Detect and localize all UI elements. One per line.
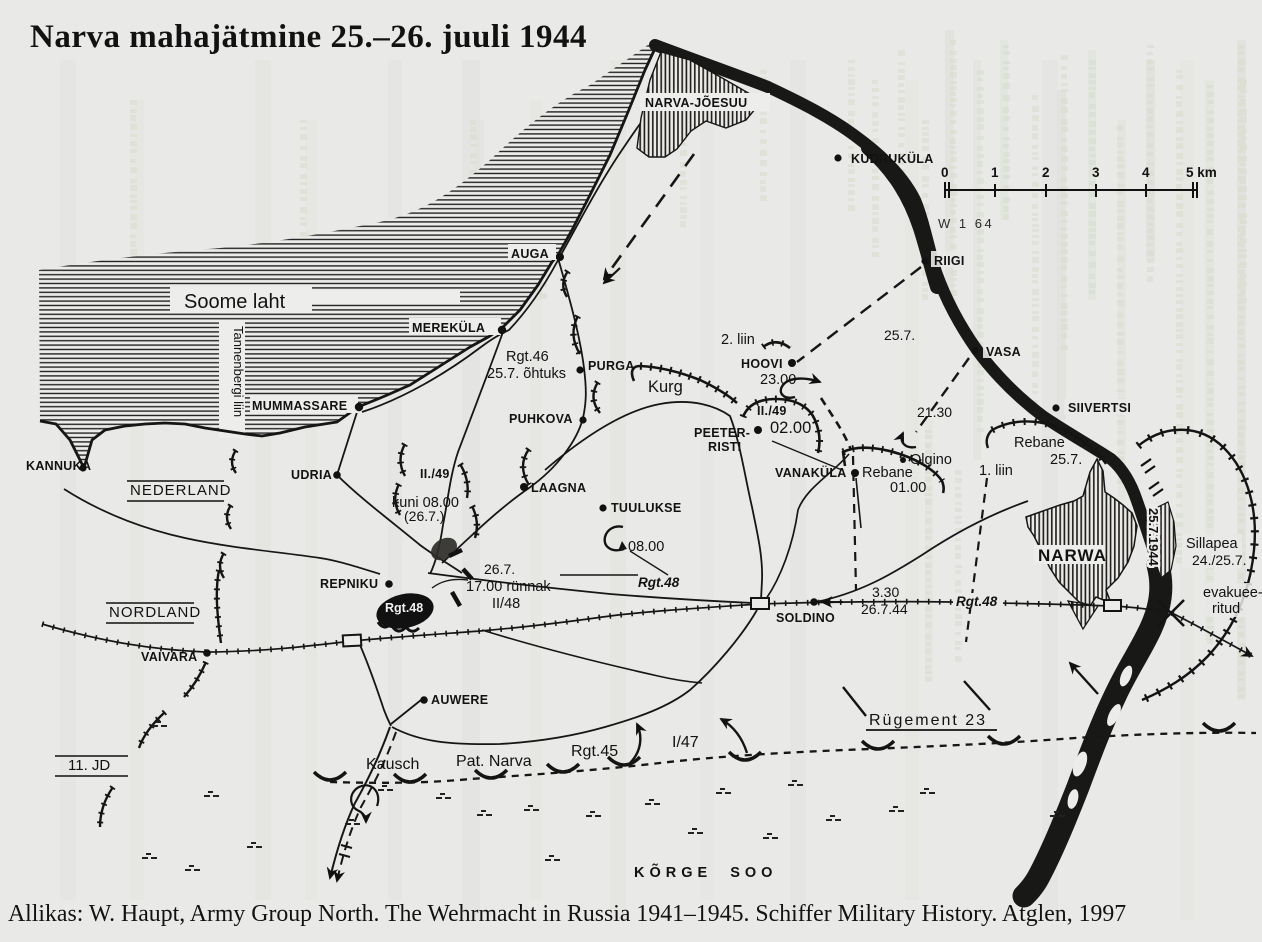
svg-text:PUHKOVA: PUHKOVA: [509, 412, 573, 426]
svg-text:KÕRGE SOO: KÕRGE SOO: [634, 863, 777, 881]
svg-text:2. liin: 2. liin: [721, 332, 755, 348]
svg-text:24./25.7.: 24./25.7.: [1192, 552, 1247, 568]
svg-text:2: 2: [1042, 165, 1050, 180]
svg-text:01.00: 01.00: [890, 480, 926, 496]
svg-text:TUULUKSE: TUULUKSE: [611, 501, 681, 515]
svg-text:evakuee-: evakuee-: [1203, 585, 1262, 601]
svg-text:RISTI: RISTI: [708, 440, 741, 454]
svg-text:Tannenbergi liin: Tannenbergi liin: [231, 326, 246, 417]
svg-text:Rügement 23: Rügement 23: [869, 712, 987, 729]
svg-text:SIIVERTSI: SIIVERTSI: [1068, 401, 1131, 415]
svg-text:21.30: 21.30: [917, 404, 952, 420]
svg-text:I/47: I/47: [672, 734, 699, 751]
svg-text:Rgt.45: Rgt.45: [571, 743, 618, 760]
svg-text:11. JD: 11. JD: [68, 757, 110, 774]
svg-text:26.7.44: 26.7.44: [861, 601, 908, 617]
svg-text:LAAGNA: LAAGNA: [531, 481, 586, 495]
svg-text:REPNIKU: REPNIKU: [320, 577, 378, 591]
svg-text:17.00 rünnak: 17.00 rünnak: [466, 579, 551, 595]
svg-text:PURGA: PURGA: [588, 359, 635, 373]
svg-text:25.7.1944: 25.7.1944: [1146, 508, 1161, 567]
svg-text:II./49: II./49: [757, 404, 787, 418]
svg-text:NORDLAND: NORDLAND: [109, 604, 201, 621]
svg-text:UDRIA: UDRIA: [291, 468, 332, 482]
svg-text:5 km: 5 km: [1186, 165, 1217, 180]
svg-text:Allikas: W. Haupt, Army Group: Allikas: W. Haupt, Army Group North. The…: [8, 901, 1126, 927]
svg-text:II/48: II/48: [492, 596, 520, 612]
svg-text:Rgt.48: Rgt.48: [385, 601, 423, 615]
svg-text:RIIGI: RIIGI: [934, 254, 965, 268]
svg-text:Kurg: Kurg: [648, 378, 683, 396]
svg-text:1: 1: [991, 165, 999, 180]
svg-text:Pat. Narva: Pat. Narva: [456, 753, 532, 770]
svg-text:KUDRUKÜLA: KUDRUKÜLA: [851, 151, 934, 166]
svg-text:25.7.: 25.7.: [884, 327, 915, 343]
svg-text:4: 4: [1142, 165, 1150, 180]
svg-text:ritud: ritud: [1212, 601, 1240, 617]
svg-text:VANAKÜLA: VANAKÜLA: [775, 465, 847, 480]
svg-text:MUMMASSARE: MUMMASSARE: [252, 399, 347, 413]
svg-text:AUWERE: AUWERE: [431, 693, 488, 707]
svg-text:26.7.: 26.7.: [484, 561, 515, 577]
svg-text:Narva mahajätmine 25.–26. juul: Narva mahajätmine 25.–26. juuli 1944: [30, 19, 587, 55]
svg-text:SOLDINO: SOLDINO: [776, 611, 835, 625]
svg-text:Rgt.48: Rgt.48: [956, 594, 998, 609]
svg-text:Kausch: Kausch: [366, 756, 419, 773]
svg-text:Rebane: Rebane: [1014, 435, 1065, 451]
svg-text:(26.7.): (26.7.): [404, 508, 444, 524]
svg-text:KANNUKA: KANNUKA: [26, 459, 91, 473]
svg-text:25.7. õhtuks: 25.7. õhtuks: [487, 366, 566, 382]
svg-text:NARVA-JÕESUU: NARVA-JÕESUU: [645, 95, 747, 110]
svg-text:Rgt.48: Rgt.48: [638, 575, 680, 590]
svg-text:23.00: 23.00: [760, 372, 796, 388]
svg-text:VAIVARA: VAIVARA: [141, 650, 198, 664]
svg-text:Sillapea: Sillapea: [1186, 536, 1239, 552]
svg-text:3: 3: [1092, 165, 1100, 180]
svg-text:0: 0: [941, 165, 949, 180]
svg-text:AUGA: AUGA: [511, 247, 549, 261]
svg-text:Rebane: Rebane: [862, 465, 913, 481]
svg-text:Rgt.46: Rgt.46: [506, 349, 549, 365]
svg-text:II./49: II./49: [420, 467, 450, 481]
svg-text:PEETER-: PEETER-: [694, 426, 750, 440]
svg-text:NEDERLAND: NEDERLAND: [130, 482, 232, 499]
svg-text:W 1 64: W 1 64: [938, 216, 994, 231]
svg-text:Olgino: Olgino: [910, 452, 952, 468]
svg-text:02.00: 02.00: [770, 419, 811, 437]
svg-text:HOOVI: HOOVI: [741, 357, 783, 371]
svg-text:3.30: 3.30: [872, 584, 899, 600]
svg-text:VASA: VASA: [986, 345, 1021, 359]
svg-text:NARWA: NARWA: [1038, 546, 1107, 565]
svg-text:MEREKÜLA: MEREKÜLA: [412, 320, 485, 335]
svg-text:25.7.: 25.7.: [1050, 452, 1082, 468]
svg-text:1. liin: 1. liin: [979, 463, 1013, 479]
svg-text:08.00: 08.00: [628, 539, 664, 555]
svg-text:Soome laht: Soome laht: [184, 291, 286, 313]
